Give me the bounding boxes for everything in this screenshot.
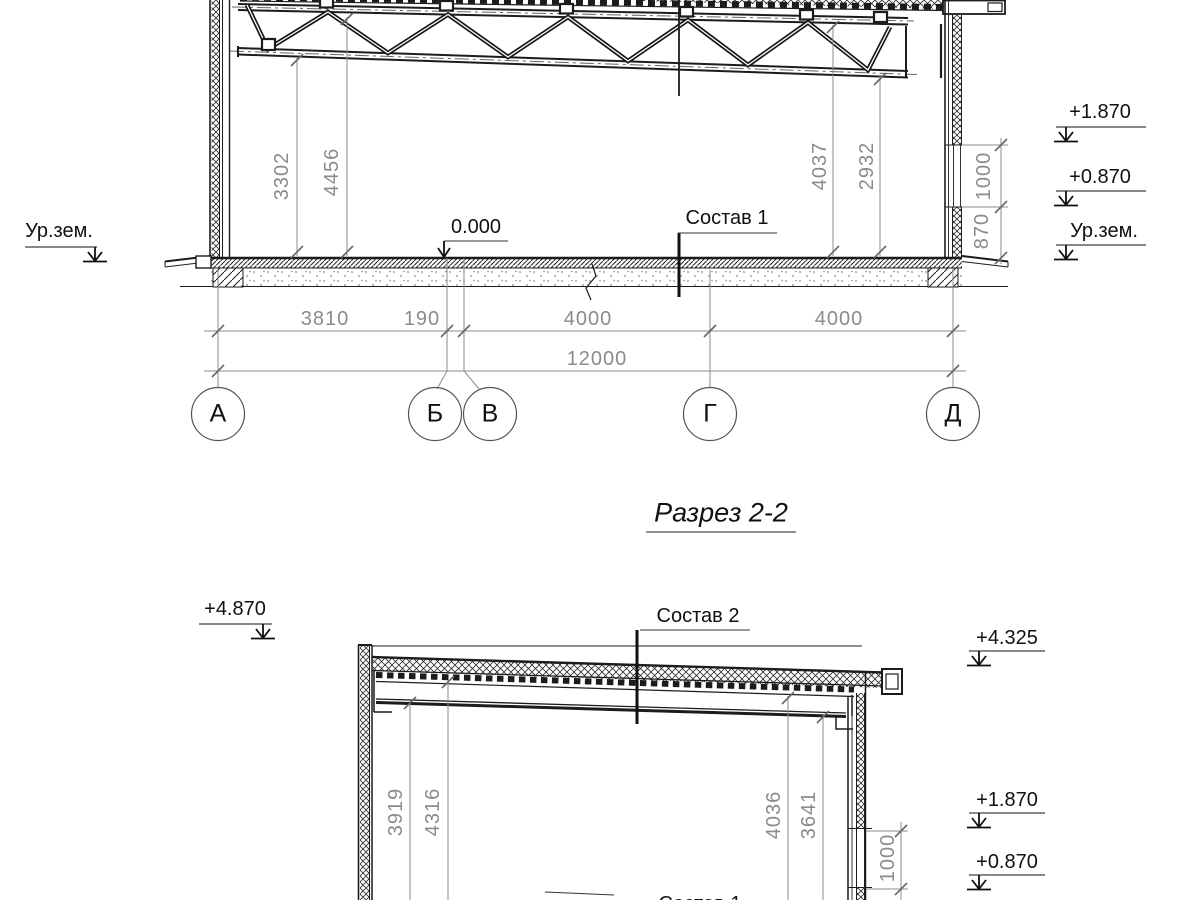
dim-height-right-2: 2932	[857, 142, 877, 191]
dim-span-4000a: 4000	[564, 309, 613, 329]
dim-window-870: 870	[972, 213, 992, 249]
dim-height-s2-left-1: 3919	[386, 788, 406, 837]
dim-window-1000-s2: 1000	[878, 834, 898, 883]
dim-span-3810: 3810	[301, 309, 350, 329]
elevation-mark-0870-s2: +0.870	[976, 852, 1038, 872]
axis-bubble-a: А	[210, 402, 227, 427]
axis-bubble-b: Б	[427, 402, 443, 427]
section-title: Разрез 2-2	[646, 500, 796, 533]
composition2-label: Состав 2	[657, 606, 740, 626]
drawing-sheet: 3302 4456 4037 2932 1000 870 +1.870 +0.8…	[0, 0, 1200, 900]
floor-level-label: 0.000	[451, 217, 501, 237]
dim-span-190: 190	[404, 309, 440, 329]
axis-bubble-d: Д	[945, 402, 962, 427]
dim-span-4000b: 4000	[815, 309, 864, 329]
elevation-mark-1870-s2: +1.870	[976, 790, 1038, 810]
dim-total-12000: 12000	[567, 349, 628, 369]
elevation-mark-4325: +4.325	[976, 628, 1038, 648]
dim-height-left-1: 3302	[272, 152, 292, 201]
dim-height-s2-right-1: 4036	[764, 791, 784, 840]
section-linework	[0, 0, 1200, 900]
axis-bubble-v: В	[482, 402, 499, 427]
composition1-label-bottom: Состав 1	[659, 894, 742, 900]
dim-height-s2-left-2: 4316	[423, 788, 443, 837]
elevation-mark-0870: +0.870	[1069, 167, 1131, 187]
elevation-mark-1870: +1.870	[1069, 102, 1131, 122]
section2-drawing	[199, 624, 1045, 900]
dim-height-left-2: 4456	[322, 148, 342, 197]
elevation-mark-4870: +4.870	[204, 599, 266, 619]
dim-window-1000: 1000	[974, 152, 994, 201]
ground-level-label-right: Ур.зем.	[1070, 221, 1138, 241]
axis-bubble-g: Г	[703, 402, 717, 427]
ground-level-label-left: Ур.зем.	[25, 221, 93, 241]
composition1-label: Состав 1	[686, 208, 769, 228]
dim-height-s2-right-2: 3641	[799, 791, 819, 840]
dim-height-right-1: 4037	[810, 142, 830, 191]
